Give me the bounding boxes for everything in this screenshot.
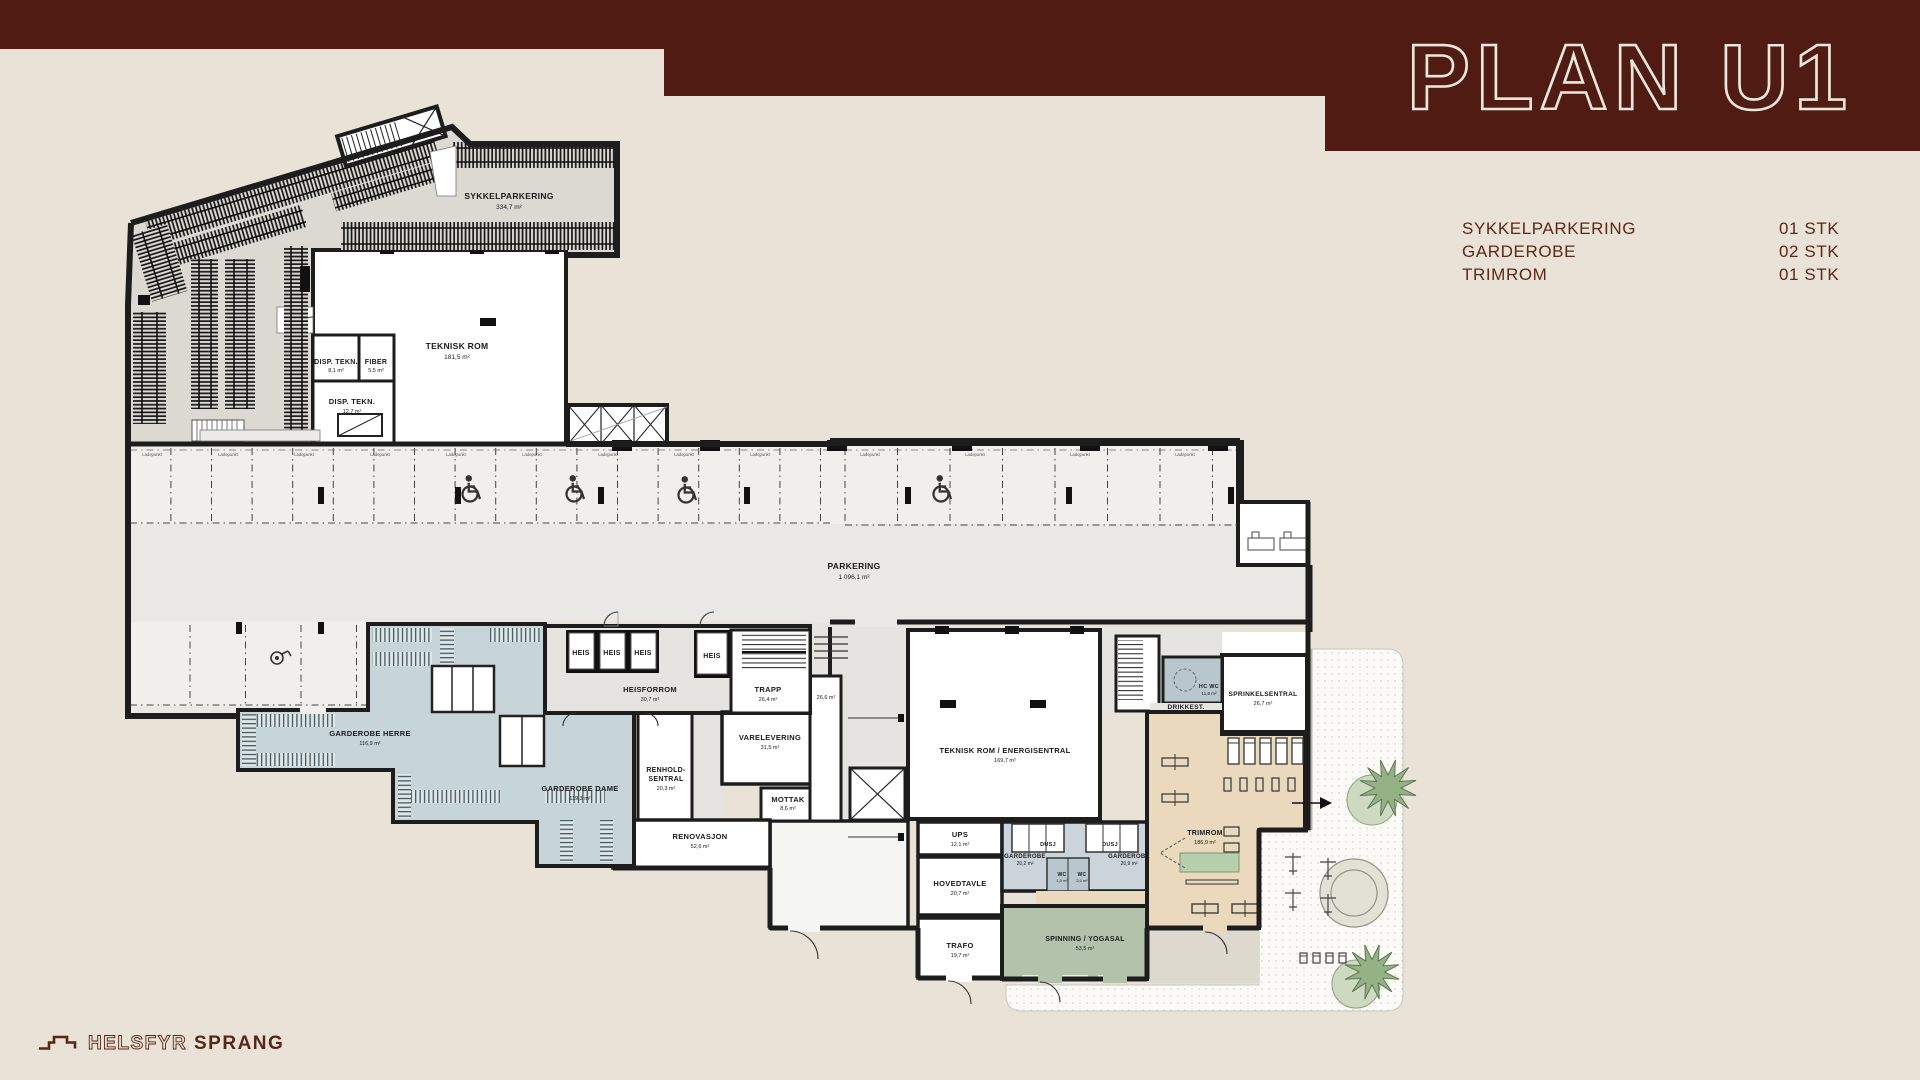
svg-text:31,5 m²: 31,5 m² [761,745,780,751]
svg-text:Ladepunkt: Ladepunkt [218,452,238,457]
svg-text:1 096,1 m²: 1 096,1 m² [838,574,870,581]
svg-text:12,7 m²: 12,7 m² [343,409,362,415]
svg-text:GARDEROBE: GARDEROBE [1004,854,1046,860]
svg-text:DUSJ: DUSJ [1040,842,1056,848]
svg-text:01 STK: 01 STK [1779,219,1839,238]
svg-text:DISP. TEKN.: DISP. TEKN. [314,359,358,366]
svg-text:DUSJ: DUSJ [1102,842,1118,848]
svg-text:Ladepunkt: Ladepunkt [522,452,542,457]
svg-text:SPINNING / YOGASAL: SPINNING / YOGASAL [1045,936,1125,943]
svg-text:Ladepunkt: Ladepunkt [965,452,985,457]
svg-text:2,0 m²: 2,0 m² [1076,878,1088,883]
svg-text:PARKERING: PARKERING [827,561,880,571]
svg-text:26,4 m²: 26,4 m² [759,697,778,703]
svg-text:12,1 m²: 12,1 m² [951,842,970,848]
svg-text:GARDEROBE: GARDEROBE [1108,854,1150,860]
svg-text:02 STK: 02 STK [1779,242,1839,261]
svg-text:Ladepunkt: Ladepunkt [446,452,466,457]
svg-text:SPRINKELSENTRAL: SPRINKELSENTRAL [1229,691,1298,698]
svg-text:DISP. TEKN.: DISP. TEKN. [329,397,376,406]
svg-text:20,2 m²: 20,2 m² [1017,861,1034,867]
svg-text:SYKKELPARKERING: SYKKELPARKERING [464,191,553,201]
svg-text:26,6 m²: 26,6 m² [817,695,836,701]
svg-text:TRIMROM: TRIMROM [1187,830,1223,837]
svg-text:116,9 m²: 116,9 m² [359,741,380,747]
svg-text:GARDEROBE HERRE: GARDEROBE HERRE [329,729,411,738]
svg-text:FIBER: FIBER [365,359,388,366]
svg-text:52,6 m²: 52,6 m² [691,844,710,850]
svg-text:TRAFO: TRAFO [946,941,973,950]
svg-text:SENTRAL: SENTRAL [648,776,684,783]
svg-text:8,1 m²: 8,1 m² [328,368,344,374]
svg-text:HEISFORROM: HEISFORROM [623,685,677,694]
svg-text:20,9 m²: 20,9 m² [1121,861,1138,867]
svg-text:RENOVASJON: RENOVASJON [673,832,728,841]
svg-text:26,7 m²: 26,7 m² [1254,701,1273,707]
svg-text:181,5 m²: 181,5 m² [444,354,470,361]
svg-text:30,7 m²: 30,7 m² [641,697,660,703]
svg-text:Ladepunkt: Ladepunkt [750,452,770,457]
svg-text:Ladepunkt: Ladepunkt [294,452,314,457]
svg-text:169,7 m²: 169,7 m² [994,758,1016,764]
svg-text:GARDEROBE DAME: GARDEROBE DAME [541,784,618,793]
svg-text:HEIS: HEIS [634,650,652,657]
svg-text:20,3 m²: 20,3 m² [657,786,676,792]
svg-text:Ladepunkt: Ladepunkt [142,452,162,457]
svg-text:20,7 m²: 20,7 m² [951,891,970,897]
svg-text:HOVEDTAVLE: HOVEDTAVLE [933,879,986,888]
svg-text:1,5 m²: 1,5 m² [1056,878,1068,883]
svg-text:01 STK: 01 STK [1779,265,1839,284]
svg-text:RENHOLD-: RENHOLD- [646,767,686,774]
svg-text:Ladepunkt: Ladepunkt [598,452,618,457]
svg-text:19,7 m²: 19,7 m² [951,953,970,959]
svg-text:SPRANG: SPRANG [194,1033,284,1054]
svg-text:HELSFYR: HELSFYR [88,1033,187,1054]
svg-text:TEKNISK ROM / ENERGISENTRAL: TEKNISK ROM / ENERGISENTRAL [939,746,1070,755]
svg-text:TRAPP: TRAPP [755,685,782,694]
svg-text:119,3 m²: 119,3 m² [569,796,590,802]
svg-text:HC WC: HC WC [1199,684,1219,690]
svg-text:HEIS: HEIS [703,653,721,660]
svg-text:Ladepunkt: Ladepunkt [1070,452,1090,457]
svg-text:334,7 m²: 334,7 m² [496,204,522,211]
svg-text:PLAN U1: PLAN U1 [1407,25,1853,129]
svg-text:HEIS: HEIS [572,650,590,657]
svg-text:186,9 m²: 186,9 m² [1194,840,1216,846]
svg-text:Ladepunkt: Ladepunkt [370,452,390,457]
svg-text:5,5 m²: 5,5 m² [368,368,384,374]
svg-text:TEKNISK ROM: TEKNISK ROM [426,341,489,351]
svg-text:TRIMROM: TRIMROM [1462,265,1547,284]
svg-text:UPS: UPS [952,830,968,839]
svg-text:HEIS: HEIS [603,650,621,657]
svg-text:DRIKKEST.: DRIKKEST. [1167,704,1204,711]
svg-text:Ladepunkt: Ladepunkt [1175,452,1195,457]
svg-text:MOTTAK: MOTTAK [771,795,805,804]
svg-text:8,6 m²: 8,6 m² [780,806,796,812]
svg-text:Ladepunkt: Ladepunkt [860,452,880,457]
svg-text:GARDEROBE: GARDEROBE [1462,242,1576,261]
svg-text:SYKKELPARKERING: SYKKELPARKERING [1462,219,1636,238]
svg-text:Ladepunkt: Ladepunkt [674,452,694,457]
svg-text:VARELEVERING: VARELEVERING [739,733,801,742]
svg-text:53,5 m²: 53,5 m² [1076,946,1095,952]
svg-text:11,8 m²: 11,8 m² [1202,691,1217,696]
